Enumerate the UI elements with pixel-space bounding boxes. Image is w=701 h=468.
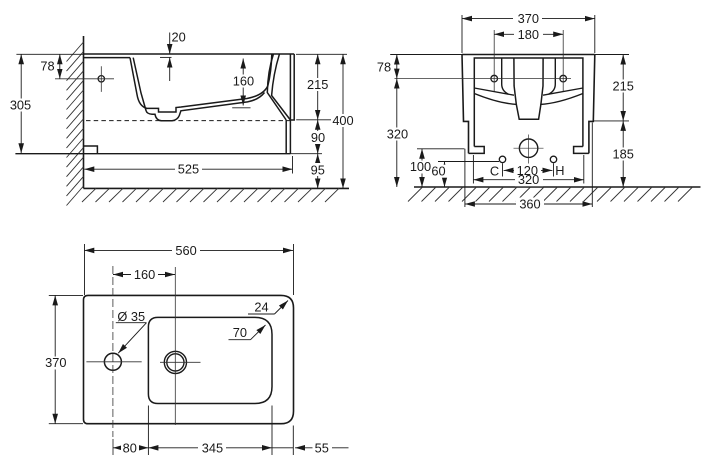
svg-text:C: C <box>490 164 499 179</box>
svg-text:70: 70 <box>233 325 247 340</box>
svg-text:400: 400 <box>332 113 353 128</box>
svg-text:320: 320 <box>387 126 408 141</box>
svg-text:95: 95 <box>311 163 325 178</box>
svg-text:160: 160 <box>233 74 254 89</box>
svg-text:100: 100 <box>410 159 431 174</box>
svg-text:24: 24 <box>254 300 268 315</box>
svg-text:80: 80 <box>123 440 137 455</box>
svg-text:90: 90 <box>311 130 325 145</box>
svg-text:370: 370 <box>518 11 539 26</box>
svg-text:215: 215 <box>613 79 634 94</box>
svg-text:60: 60 <box>431 163 445 178</box>
svg-text:360: 360 <box>519 197 540 212</box>
svg-text:160: 160 <box>134 267 155 282</box>
svg-text:55: 55 <box>315 440 329 455</box>
svg-text:370: 370 <box>45 355 66 370</box>
svg-text:320: 320 <box>518 172 539 187</box>
svg-text:Ø 35: Ø 35 <box>117 309 145 324</box>
svg-text:78: 78 <box>377 60 391 75</box>
svg-text:180: 180 <box>518 27 539 42</box>
svg-text:305: 305 <box>10 97 31 112</box>
svg-text:H: H <box>555 163 564 178</box>
svg-text:345: 345 <box>202 440 223 455</box>
svg-text:20: 20 <box>172 30 186 45</box>
svg-text:560: 560 <box>175 243 196 258</box>
svg-text:525: 525 <box>178 162 199 177</box>
svg-text:185: 185 <box>613 147 634 162</box>
svg-text:215: 215 <box>307 77 328 92</box>
svg-text:78: 78 <box>40 59 54 74</box>
